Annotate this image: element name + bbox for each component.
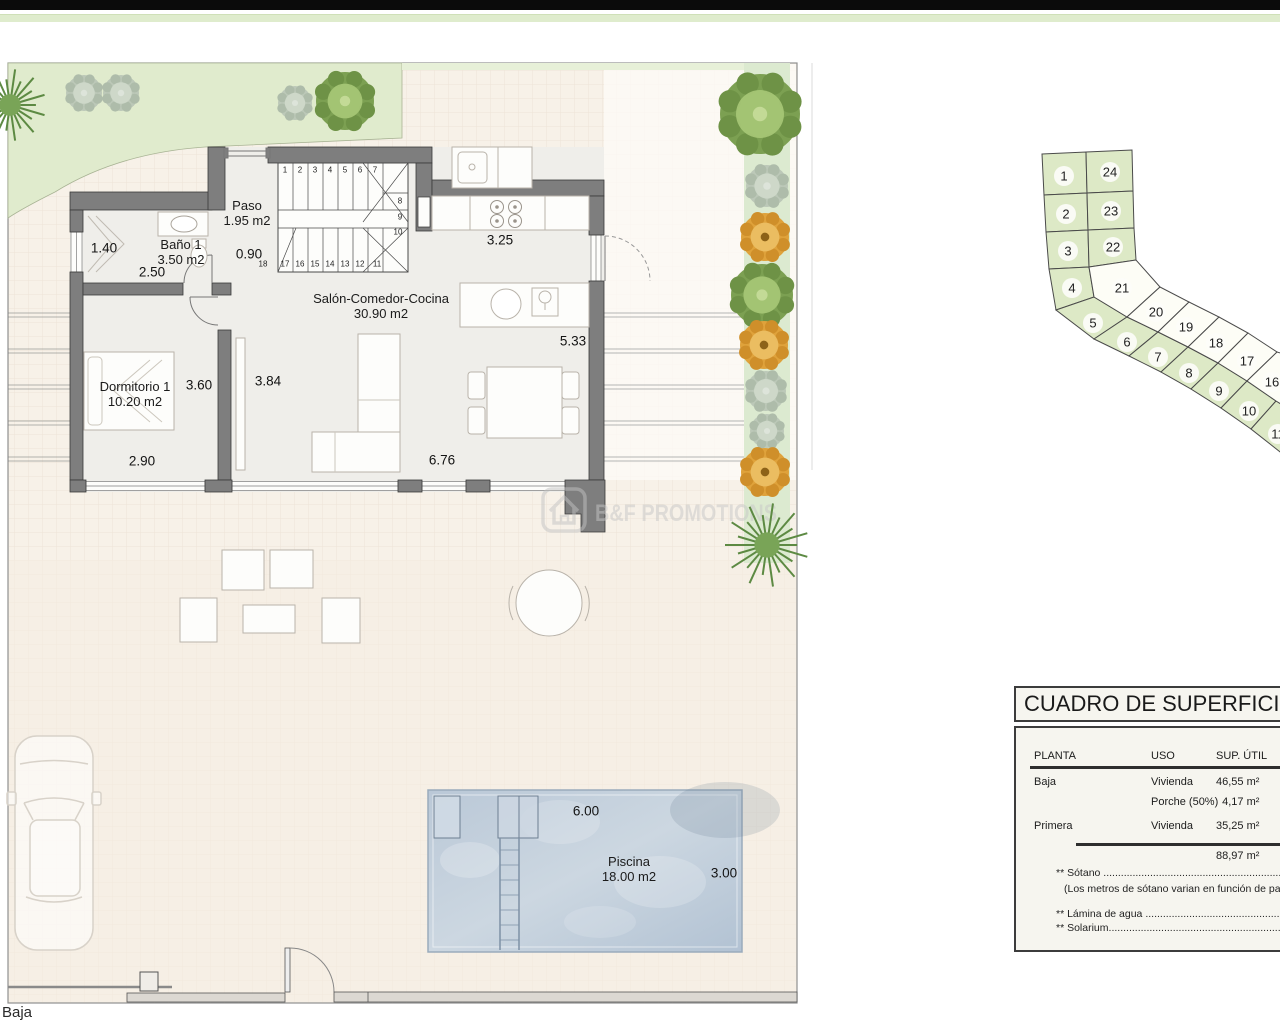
plot-number: 16 [1265,375,1279,390]
cell-uso: Vivienda [1151,776,1193,788]
cell-planta: Baja [1034,776,1056,788]
chair [468,407,485,434]
pool-step [498,796,538,838]
cell-uso: Porche (50%) [1151,796,1218,808]
col-header-sup: SUP. ÚTIL [1216,750,1267,762]
terrace-sofa [270,550,313,588]
plot-number: 5 [1089,316,1096,331]
total-value: 88,97 m² [1216,850,1259,862]
outdoor-sink [452,147,532,188]
kitchen-counter [432,196,589,230]
plot-number: 11 [1271,427,1280,442]
sofa-seat [312,432,400,472]
pool-step [434,796,460,838]
plot-map: 1234567891011242322212019181716 [1030,140,1280,460]
toilet-icon [191,245,207,267]
gate-post [140,972,158,991]
cell-planta: Primera [1034,820,1073,832]
cell-sup: 4,17 m² [1216,796,1259,808]
note-lamina: ** Lámina de agua ......................… [1056,908,1280,920]
staircase [278,163,408,272]
terrace-armchair [322,598,360,643]
plot-number: 22 [1106,240,1120,255]
chair [468,372,485,399]
plot-number: 18 [1209,336,1223,351]
car-icon [7,736,101,950]
bed [84,352,174,430]
plot-number: 21 [1115,281,1129,296]
cell-uso: Vivienda [1151,820,1193,832]
col-header-uso: USO [1151,750,1175,762]
plot-number: 10 [1242,404,1256,419]
plot-number: 24 [1103,165,1117,180]
cell-sup: 35,25 m² [1216,820,1259,832]
washbasin-icon [171,216,197,232]
plot-number: 19 [1179,320,1193,335]
chair [562,372,579,399]
plot-number: 3 [1064,244,1071,259]
table-rule [1076,843,1280,846]
pool [428,782,780,952]
surface-table-title-text: CUADRO DE SUPERFICIES [1024,691,1280,716]
plot-number: 6 [1123,335,1130,350]
round-table [516,570,582,636]
note-solarium: ** Solarium.............................… [1056,922,1280,934]
kitchen-island [460,283,589,327]
sink-icon [491,289,521,319]
surface-table-title: CUADRO DE SUPERFICIES [1014,686,1280,722]
plot-number: 2 [1062,207,1069,222]
note-sotano-detail: (Los metros de sótano varian en función … [1064,883,1280,895]
floor-label: Baja [2,1004,32,1021]
surface-table: PLANTA USO SUP. ÚTIL Baja Vivienda 46,55… [1014,726,1280,952]
col-header-planta: PLANTA [1034,750,1076,762]
island-appliance [532,288,558,316]
dining-table [487,367,562,438]
plot-number: 8 [1185,366,1192,381]
terrace-table [243,605,295,633]
note-sotano: ** Sótano ..............................… [1056,867,1280,879]
plot-number: 20 [1149,305,1163,320]
stair-niche [418,197,430,227]
sideboard [236,338,245,470]
plot-number: 9 [1215,384,1222,399]
terrace-sofa [222,550,264,590]
plot-number: 4 [1068,281,1075,296]
floor-plan-page: B&F PROMOTIONS Paso1.95 m2Baño 13.50 m2S… [0,0,1280,1024]
watermark-text: B&F PROMOTIONS [595,500,777,527]
plot-number: 17 [1240,354,1254,369]
plot-number: 23 [1104,204,1118,219]
table-rule [1030,766,1280,769]
plot-number: 1 [1060,169,1067,184]
plot-number: 7 [1154,350,1161,365]
chair [562,407,579,434]
cell-sup: 46,55 m² [1216,776,1259,788]
terrace-armchair [180,598,217,642]
